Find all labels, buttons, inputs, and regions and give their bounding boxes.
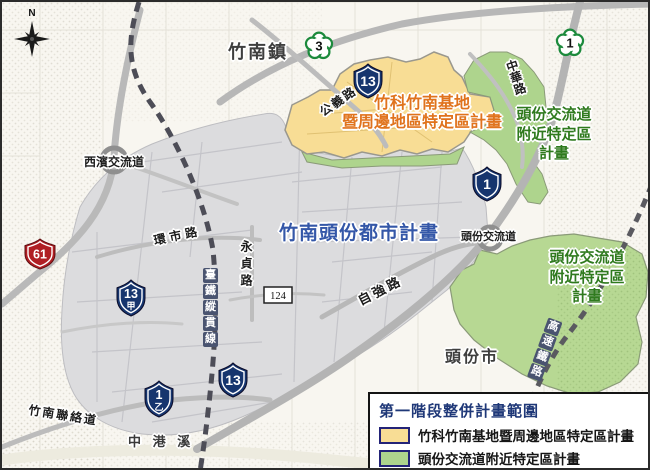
compass-north-label: N bbox=[12, 8, 52, 19]
river-label-zhonggang: 中 港 溪 bbox=[128, 431, 194, 450]
town-label-toufen: 頭份市 bbox=[445, 343, 499, 367]
toufen-interchange-label: 頭份交流道 bbox=[461, 228, 516, 244]
svg-text:124: 124 bbox=[270, 291, 287, 302]
urban-plan-area-label: 竹南頭份都市計畫 bbox=[279, 218, 439, 245]
svg-text:13: 13 bbox=[124, 287, 138, 301]
interchange-area-label-lower: 頭份交流道 附近特定區 計畫 bbox=[540, 248, 634, 307]
compass-star-icon bbox=[12, 19, 52, 59]
xibin-interchange-label: 西濱交流道 bbox=[84, 153, 144, 170]
legend-label-interchange: 頭份交流道附近特定區計畫 bbox=[418, 448, 580, 468]
road-label-yongzhen: 永貞路 bbox=[238, 240, 255, 291]
route-shield-provincial-13jia: 13 甲 bbox=[115, 279, 147, 317]
svg-text:1: 1 bbox=[483, 176, 491, 192]
legend-label-science-park: 竹科竹南基地暨周邊地區特定區計畫 bbox=[418, 425, 634, 445]
science-park-area-label: 竹科竹南基地 暨周邊地區特定區計畫 bbox=[332, 94, 512, 132]
legend-swatch-science-park bbox=[379, 427, 410, 444]
svg-text:3: 3 bbox=[315, 39, 322, 54]
route-shield-provincial-13-bottom: 13 bbox=[217, 362, 249, 398]
legend-swatch-interchange bbox=[379, 450, 410, 467]
interchange-area-label-upper: 頭份交流道 附近特定區 計畫 bbox=[508, 105, 600, 164]
route-shield-provincial-13-top: 13 bbox=[352, 63, 384, 99]
svg-text:13: 13 bbox=[360, 73, 376, 89]
svg-text:乙: 乙 bbox=[154, 402, 163, 412]
svg-text:1: 1 bbox=[156, 388, 163, 402]
route-shield-provincial-1yi: 1 乙 bbox=[143, 380, 175, 418]
legend-title: 第一階段整併計畫範圍 bbox=[379, 400, 639, 421]
legend: 第一階段整併計畫範圍 竹科竹南基地暨周邊地區特定區計畫 頭份交流道附近特定區計畫 bbox=[368, 392, 650, 470]
planning-map: N 竹南鎮 頭份市 竹科竹南基地 暨周邊地區特定區計畫 竹南頭份都市計畫 頭份交… bbox=[0, 0, 650, 470]
svg-text:甲: 甲 bbox=[126, 301, 135, 311]
route-shield-provincial-1: 1 bbox=[471, 166, 503, 202]
town-label-zhunan: 竹南鎮 bbox=[228, 38, 288, 64]
legend-item-science-park: 竹科竹南基地暨周邊地區特定區計畫 bbox=[379, 425, 639, 445]
route-shield-national-1: 1 bbox=[553, 26, 587, 60]
legend-item-interchange: 頭份交流道附近特定區計畫 bbox=[379, 448, 639, 468]
svg-text:13: 13 bbox=[225, 372, 241, 388]
route-shield-expressway-61: 61 bbox=[23, 238, 57, 270]
route-shield-county-124: 124 bbox=[263, 286, 293, 304]
route-shield-national-3: 3 bbox=[302, 29, 336, 63]
svg-text:61: 61 bbox=[33, 248, 47, 262]
compass-rose: N bbox=[12, 8, 52, 59]
svg-text:1: 1 bbox=[566, 36, 573, 51]
tra-railway-label: 臺 鐵 縱 貫 線 bbox=[203, 268, 218, 347]
